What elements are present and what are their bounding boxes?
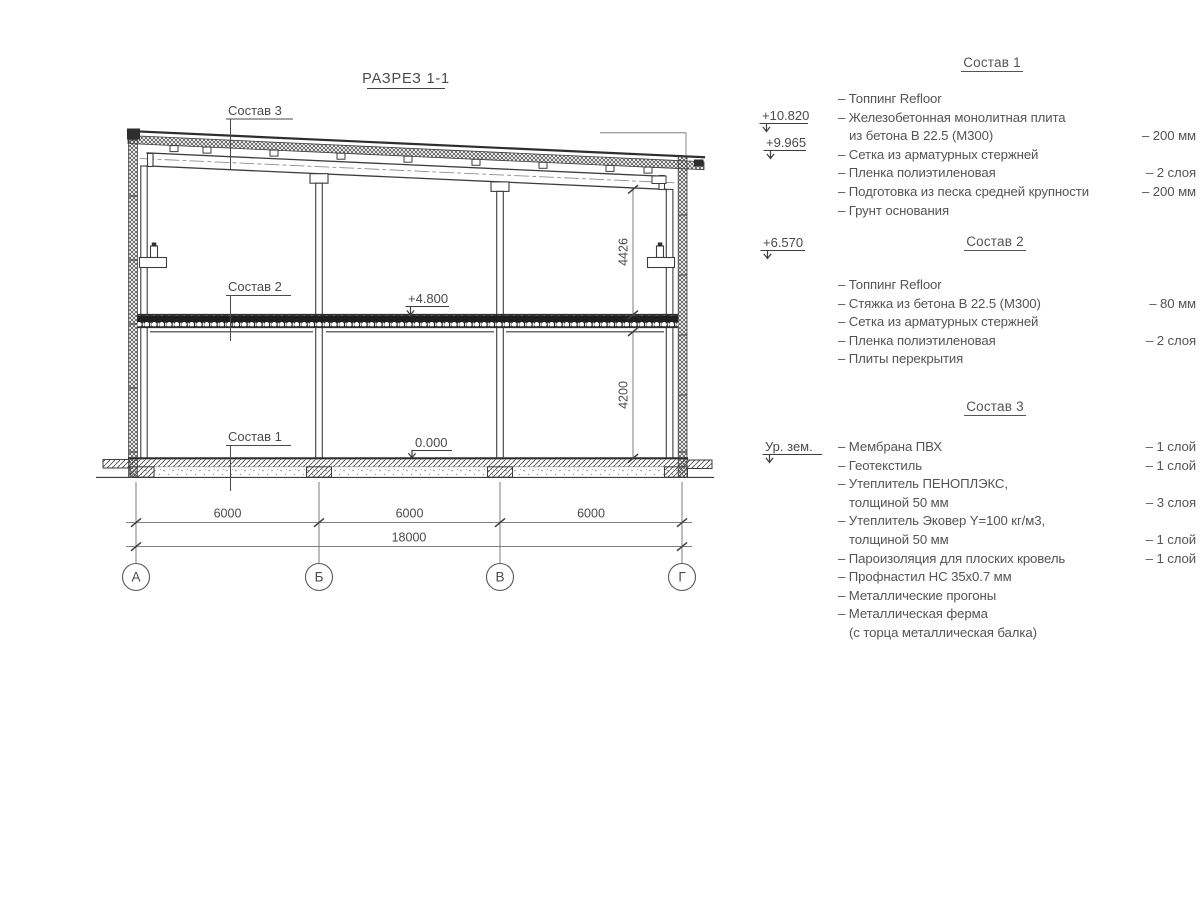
- legend-item-text: – Пароизоляция для плоских кровель: [838, 550, 1065, 569]
- crane-brackets: [140, 243, 675, 268]
- legend-heading-sostav2: Состав 2: [953, 234, 1037, 249]
- legend-item-text: – Сетка из арматурных стержней: [838, 313, 1038, 332]
- legend-item-value: – 2 слоя: [1138, 332, 1196, 351]
- legend-row: – Сетка из арматурных стержней: [838, 146, 1196, 165]
- legend-item-text: – Грунт основания: [838, 202, 949, 221]
- legend-item-value: [1188, 202, 1196, 221]
- legend-item-value: [1188, 624, 1196, 643]
- drawing-title: РАЗРЕЗ 1-1: [362, 71, 450, 87]
- legend-heading-sostav3: Состав 3: [953, 399, 1037, 414]
- left-wall: [129, 140, 138, 478]
- legend-row: – Сетка из арматурных стержней: [838, 313, 1196, 332]
- columns: [141, 166, 673, 459]
- legend-heading-sostav1-text: Состав 1: [961, 55, 1023, 72]
- legend-item-value: – 200 мм: [1134, 127, 1196, 146]
- dimension-bay-2: 6000: [396, 507, 424, 521]
- legend-item-text: – Профнастил НС 35х0.7 мм: [838, 568, 1012, 587]
- callout-sostav3: Состав 3: [228, 103, 282, 118]
- legend-item-text: – Стяжка из бетона В 22.5 (М300): [838, 295, 1041, 314]
- legend-row: – Пленка полиэтиленовая– 2 слоя: [838, 164, 1196, 183]
- legend-item-value: [1188, 587, 1196, 606]
- legend-item-value: [1188, 475, 1196, 494]
- sand-bedding: [129, 467, 687, 477]
- legend-item-text: (с торца металлическая балка): [838, 624, 1037, 643]
- legend-row: – Утеплитель Эковер Y=100 кг/м3,: [838, 512, 1196, 531]
- legend-item-text: – Утеплитель Эковер Y=100 кг/м3,: [838, 512, 1045, 531]
- legend-item-text: из бетона В 22.5 (М300): [838, 127, 993, 146]
- column-axis-a: [141, 166, 147, 459]
- legend-row: из бетона В 22.5 (М300)– 200 мм: [838, 127, 1196, 146]
- legend-item-text: – Сетка из арматурных стержней: [838, 146, 1038, 165]
- legend-row: – Геотекстиль– 1 слой: [838, 457, 1196, 476]
- legend-item-value: – 200 мм: [1134, 183, 1196, 202]
- axis-label-v: В: [495, 570, 504, 585]
- legend-item-value: – 80 мм: [1141, 295, 1196, 314]
- legend-row: – Грунт основания: [838, 202, 1196, 221]
- plinth-left: [103, 460, 129, 469]
- dimension-total: 18000: [392, 531, 427, 545]
- legend-item-text: – Топпинг Refloor: [838, 276, 942, 295]
- bracket-stub-left: [151, 246, 158, 258]
- legend-item-text: – Геотекстиль: [838, 457, 922, 476]
- legend-item-value: [1188, 512, 1196, 531]
- column-capital-b: [310, 174, 328, 184]
- truss-bottom-chord: [147, 166, 666, 190]
- legend-item-value: [1188, 146, 1196, 165]
- drawing-sheet: Состав 3 Состав 2 Состав 1 +10.820 +9.96…: [0, 0, 1200, 900]
- legend-item-value: – 2 слоя: [1138, 164, 1196, 183]
- elevation-roof-high: +10.820: [762, 108, 809, 123]
- legend-row: (с торца металлическая балка): [838, 624, 1196, 643]
- legend-item-value: – 1 слой: [1138, 457, 1196, 476]
- dimension-bay-1: 6000: [214, 507, 242, 521]
- elevation-roof-low: +9.965: [766, 135, 806, 150]
- elevation-truss-support: +6.570: [763, 235, 803, 250]
- legend-item-value: [1188, 90, 1196, 109]
- bracket-stub-right: [657, 246, 664, 258]
- legend-item-value: – 1 слой: [1138, 531, 1196, 550]
- truss-bearing-block: [652, 176, 666, 184]
- legend-row: – Пленка полиэтиленовая– 2 слоя: [838, 332, 1196, 351]
- legend-heading-sostav2-text: Состав 2: [964, 234, 1026, 251]
- dimension-upper-height: 4426: [617, 238, 631, 266]
- legend-row: – Металлические прогоны: [838, 587, 1196, 606]
- legend-row: толщиной 50 мм– 3 слоя: [838, 494, 1196, 513]
- roof-structure: [127, 129, 704, 190]
- legend-item-text: – Мембрана ПВХ: [838, 438, 942, 457]
- legend-item-text: – Утеплитель ПЕНОПЛЭКС,: [838, 475, 1008, 494]
- dimension-bay-3: 6000: [577, 507, 605, 521]
- legend-item-text: – Плиты перекрытия: [838, 350, 963, 369]
- legend-item-text: – Железобетонная монолитная плита: [838, 109, 1066, 128]
- legend-row: – Утеплитель ПЕНОПЛЭКС,: [838, 475, 1196, 494]
- legend-row: – Металлическая ферма: [838, 605, 1196, 624]
- bracket-arm-right: [648, 258, 675, 268]
- elevation-floor-zero: 0.000: [415, 435, 448, 450]
- axis-bubbles: А Б В Г: [123, 564, 696, 591]
- legend-heading-sostav3-text: Состав 3: [964, 399, 1026, 416]
- truss-end-post-left: [148, 154, 154, 167]
- legend-row: – Плиты перекрытия: [838, 350, 1196, 369]
- legend-item-value: [1188, 568, 1196, 587]
- column-capital-v: [491, 182, 509, 192]
- legend-item-value: – 1 слой: [1138, 550, 1196, 569]
- axis-label-b: Б: [315, 570, 324, 585]
- floor-screed-hatch: [129, 459, 687, 466]
- bracket-arm-left: [140, 258, 167, 268]
- legend-item-value: – 3 слоя: [1138, 494, 1196, 513]
- ground-floor: [96, 458, 714, 477]
- axis-label-a: А: [131, 570, 140, 585]
- bracket-cap-left: [152, 243, 157, 247]
- legend-item-value: – 1 слой: [1138, 438, 1196, 457]
- legend-item-text: – Металлические прогоны: [838, 587, 996, 606]
- roof-edge-cap-right: [694, 160, 704, 167]
- legend-section-sostav1: – Топпинг Refloor – Железобетонная монол…: [838, 90, 1196, 220]
- callouts: Состав 3 Состав 2 Состав 1: [226, 103, 293, 491]
- plinth-right: [687, 460, 712, 469]
- legend-item-text: – Металлическая ферма: [838, 605, 988, 624]
- drawing-title-group: РАЗРЕЗ 1-1: [362, 71, 450, 89]
- elevation-ground-level: Ур. зем.: [765, 439, 813, 454]
- legend-row: – Подготовка из песка средней крупности–…: [838, 183, 1196, 202]
- bracket-cap-right: [658, 243, 663, 247]
- callout-sostav2: Состав 2: [228, 279, 282, 294]
- legend-item-text: толщиной 50 мм: [838, 494, 949, 513]
- legend-item-text: – Подготовка из песка средней крупности: [838, 183, 1089, 202]
- legend-row: – Стяжка из бетона В 22.5 (М300)– 80 мм: [838, 295, 1196, 314]
- legend-item-value: [1188, 313, 1196, 332]
- horizontal-dimensions: 6000 6000 6000 18000: [126, 482, 692, 564]
- legend-heading-sostav1: Состав 1: [950, 55, 1034, 70]
- legend-item-text: толщиной 50 мм: [838, 531, 949, 550]
- legend-item-text: – Пленка полиэтиленовая: [838, 164, 996, 183]
- legend-section-sostav2: – Топпинг Refloor – Стяжка из бетона В 2…: [838, 276, 1196, 369]
- legend-row: – Топпинг Refloor: [838, 276, 1196, 295]
- legend-row: – Профнастил НС 35х0.7 мм: [838, 568, 1196, 587]
- legend-row: – Пароизоляция для плоских кровель– 1 сл…: [838, 550, 1196, 569]
- legend-item-text: – Пленка полиэтиленовая: [838, 332, 996, 351]
- legend-item-value: [1188, 350, 1196, 369]
- legend-row: – Мембрана ПВХ– 1 слой: [838, 438, 1196, 457]
- legend-item-value: [1188, 605, 1196, 624]
- legend-section-sostav3: – Мембрана ПВХ– 1 слой – Геотекстиль– 1 …: [838, 438, 1196, 643]
- roof-edge-cap-left: [127, 129, 140, 140]
- callout-sostav1: Состав 1: [228, 429, 282, 444]
- dimension-lower-height: 4200: [617, 381, 631, 409]
- legend-row: толщиной 50 мм– 1 слой: [838, 531, 1196, 550]
- hollow-core-band: [137, 316, 678, 327]
- mid-floor-slab: [137, 315, 678, 332]
- axis-label-g: Г: [678, 570, 686, 585]
- legend-row: – Железобетонная монолитная плита: [838, 109, 1196, 128]
- legend-row: – Топпинг Refloor: [838, 90, 1196, 109]
- legend-item-value: [1188, 276, 1196, 295]
- legend-item-value: [1188, 109, 1196, 128]
- right-wall: [678, 157, 687, 478]
- legend-item-text: – Топпинг Refloor: [838, 90, 942, 109]
- elevation-slab-top: +4.800: [408, 291, 448, 306]
